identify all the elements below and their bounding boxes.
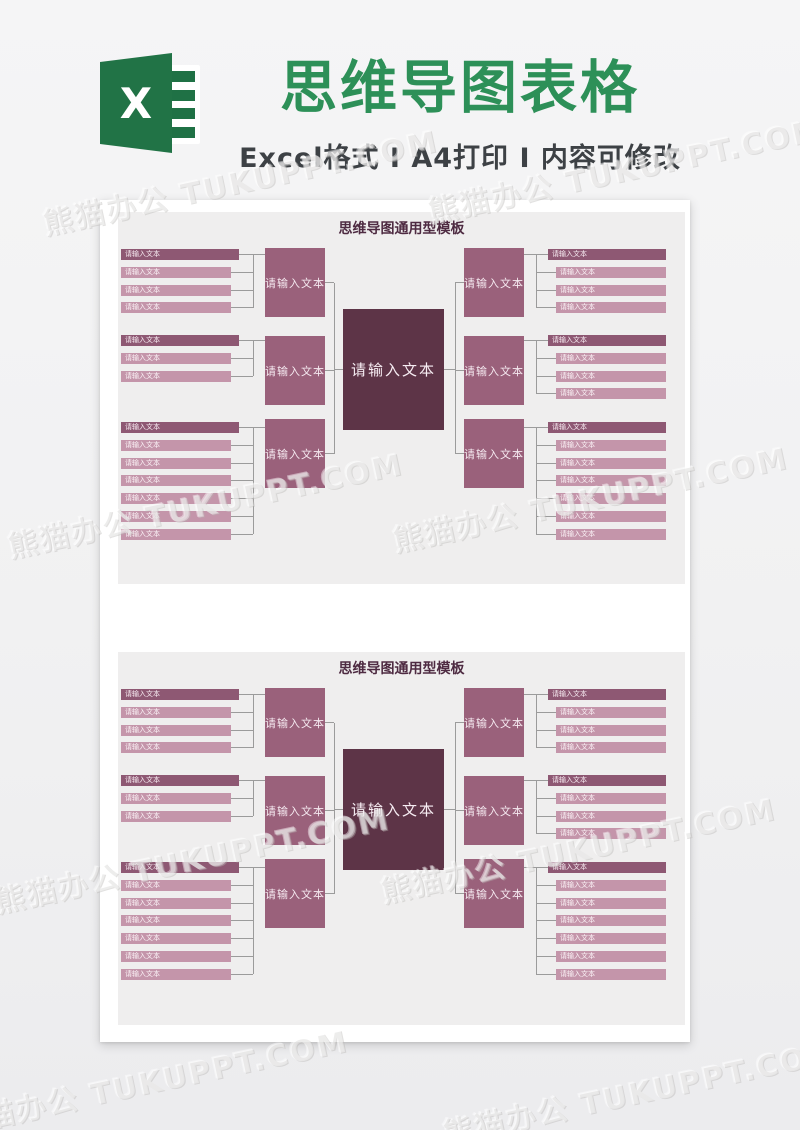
connector-line: [231, 498, 253, 499]
connector-line: [536, 480, 556, 481]
connector-line: [536, 885, 556, 886]
connector-line: [231, 307, 253, 308]
connector-line: [536, 534, 556, 535]
leaf-node: 请输入文本: [556, 475, 666, 486]
leaf-node: 请输入文本: [121, 267, 231, 278]
branch-node: 请输入文本: [464, 688, 524, 757]
leaf-node: 请输入文本: [121, 335, 239, 346]
leaf-node: 请输入文本: [556, 388, 666, 399]
branch-node: 请输入文本: [265, 688, 325, 757]
connector-line: [325, 810, 334, 811]
excel-logo-letter: X: [120, 79, 152, 128]
connector-line: [231, 534, 253, 535]
connector-line: [231, 974, 253, 975]
branch-node: 请输入文本: [464, 248, 524, 317]
connector-line: [455, 453, 464, 454]
leaf-node: 请输入文本: [556, 951, 666, 962]
connector-line: [334, 369, 343, 370]
leaf-node: 请输入文本: [548, 422, 666, 433]
connector-line: [536, 833, 556, 834]
connector-line: [455, 283, 456, 454]
connector-line: [536, 695, 537, 748]
leaf-node: 请输入文本: [121, 440, 231, 451]
connector-line: [253, 341, 254, 377]
leaf-node: 请输入文本: [556, 880, 666, 891]
connector-line: [231, 290, 253, 291]
connector-line: [231, 798, 253, 799]
leaf-node: 请输入文本: [548, 862, 666, 873]
connector-line: [536, 341, 537, 394]
connector-line: [536, 747, 556, 748]
connector-line: [253, 781, 254, 817]
leaf-node: 请输入文本: [556, 898, 666, 909]
connector-line: [334, 723, 335, 894]
connector-line: [536, 307, 556, 308]
leaf-node: 请输入文本: [121, 793, 231, 804]
leaf-node: 请输入文本: [121, 933, 231, 944]
connector-line: [536, 516, 556, 517]
leaf-node: 请输入文本: [548, 335, 666, 346]
leaf-node: 请输入文本: [556, 725, 666, 736]
leaf-node: 请输入文本: [121, 862, 239, 873]
leaf-node: 请输入文本: [556, 285, 666, 296]
leaf-node: 请输入文本: [556, 458, 666, 469]
connector-line: [231, 903, 253, 904]
leaf-node: 请输入文本: [556, 915, 666, 926]
connector-line: [536, 393, 556, 394]
leaf-node: 请输入文本: [121, 529, 231, 540]
branch-node: 请输入文本: [265, 419, 325, 488]
connector-line: [536, 290, 556, 291]
page: X 思维导图表格 Excel格式 Ⅰ A4打印 Ⅰ 内容可修改 思维导图通用型模…: [0, 0, 800, 1130]
branch-node: 请输入文本: [265, 859, 325, 928]
connector-line: [536, 463, 556, 464]
connector-line: [231, 480, 253, 481]
connector-line: [231, 956, 253, 957]
connector-line: [231, 730, 253, 731]
leaf-node: 请输入文本: [121, 493, 231, 504]
leaf-node: 请输入文本: [121, 707, 231, 718]
connector-line: [325, 370, 334, 371]
branch-node: 请输入文本: [265, 248, 325, 317]
connector-line: [536, 816, 556, 817]
connector-line: [231, 712, 253, 713]
connector-line: [325, 453, 334, 454]
leaf-node: 请输入文本: [121, 475, 231, 486]
branch-node: 请输入文本: [464, 776, 524, 845]
leaf-node: 请输入文本: [556, 828, 666, 839]
mindmap-page-1: 思维导图通用型模板请输入文本请输入文本请输入文本请输入文本请输入文本请输入文本请…: [118, 212, 685, 584]
leaf-node: 请输入文本: [121, 422, 239, 433]
leaf-node: 请输入文本: [121, 285, 231, 296]
connector-line: [231, 885, 253, 886]
connector-line: [536, 938, 556, 939]
leaf-node: 请输入文本: [121, 689, 239, 700]
connector-line: [536, 730, 556, 731]
branch-node: 请输入文本: [265, 336, 325, 405]
leaf-node: 请输入文本: [121, 880, 231, 891]
leaf-node: 请输入文本: [556, 933, 666, 944]
header-text: 思维导图表格 Excel格式 Ⅰ A4打印 Ⅰ 内容可修改: [225, 54, 695, 175]
connector-line: [334, 283, 335, 454]
branch-node: 请输入文本: [464, 859, 524, 928]
preview-sheet: 思维导图通用型模板请输入文本请输入文本请输入文本请输入文本请输入文本请输入文本请…: [100, 200, 690, 1042]
page-title: 思维导图通用型模板: [118, 218, 685, 238]
leaf-node: 请输入文本: [121, 725, 231, 736]
leaf-node: 请输入文本: [556, 267, 666, 278]
leaf-node: 请输入文本: [121, 811, 231, 822]
watermark-text: 熊猫办公 TUKUPPT.COM: [438, 1027, 800, 1130]
leaf-node: 请输入文本: [548, 775, 666, 786]
connector-line: [536, 781, 537, 834]
connector-line: [325, 722, 334, 723]
leaf-node: 请输入文本: [556, 440, 666, 451]
leaf-node: 请输入文本: [121, 249, 239, 260]
connector-line: [536, 868, 537, 975]
leaf-node: 请输入文本: [548, 689, 666, 700]
connector-line: [253, 695, 254, 748]
branch-node: 请输入文本: [265, 776, 325, 845]
leaf-node: 请输入文本: [121, 951, 231, 962]
connector-line: [536, 798, 556, 799]
leaf-node: 请输入文本: [121, 511, 231, 522]
connector-line: [231, 272, 253, 273]
connector-line: [231, 516, 253, 517]
leaf-node: 请输入文本: [121, 969, 231, 980]
leaf-node: 请输入文本: [556, 742, 666, 753]
connector-line: [455, 893, 464, 894]
mindmap-page-2: 思维导图通用型模板请输入文本请输入文本请输入文本请输入文本请输入文本请输入文本请…: [118, 652, 685, 1025]
leaf-node: 请输入文本: [121, 353, 231, 364]
connector-line: [231, 358, 253, 359]
connector-line: [536, 974, 556, 975]
central-node: 请输入文本: [343, 309, 444, 430]
connector-line: [231, 920, 253, 921]
connector-line: [536, 255, 537, 308]
leaf-node: 请输入文本: [121, 371, 231, 382]
leaf-node: 请输入文本: [548, 249, 666, 260]
connector-line: [231, 445, 253, 446]
leaf-node: 请输入文本: [556, 371, 666, 382]
connector-line: [536, 358, 556, 359]
connector-line: [231, 747, 253, 748]
connector-line: [536, 920, 556, 921]
connector-line: [231, 938, 253, 939]
connector-line: [536, 428, 537, 535]
branch-node: 请输入文本: [464, 336, 524, 405]
connector-line: [253, 868, 254, 975]
page-title: 思维导图通用型模板: [118, 658, 685, 678]
connector-line: [536, 376, 556, 377]
connector-line: [231, 816, 253, 817]
connector-line: [536, 498, 556, 499]
leaf-node: 请输入文本: [121, 742, 231, 753]
connector-line: [325, 893, 334, 894]
leaf-node: 请输入文本: [121, 302, 231, 313]
connector-line: [455, 282, 464, 283]
connector-line: [253, 255, 254, 308]
leaf-node: 请输入文本: [556, 302, 666, 313]
leaf-node: 请输入文本: [556, 969, 666, 980]
connector-line: [231, 463, 253, 464]
connector-line: [231, 376, 253, 377]
connector-line: [455, 810, 464, 811]
excel-logo-icon: X: [100, 53, 200, 153]
connector-line: [444, 809, 455, 810]
connector-line: [455, 723, 456, 894]
connector-line: [536, 272, 556, 273]
product-subtitle: Excel格式 Ⅰ A4打印 Ⅰ 内容可修改: [225, 136, 695, 175]
product-title: 思维导图表格: [225, 54, 695, 122]
leaf-node: 请输入文本: [556, 493, 666, 504]
leaf-node: 请输入文本: [121, 915, 231, 926]
connector-line: [455, 370, 464, 371]
excel-logo-cover: X: [100, 53, 172, 153]
leaf-node: 请输入文本: [556, 811, 666, 822]
connector-line: [253, 428, 254, 535]
connector-line: [455, 722, 464, 723]
leaf-node: 请输入文本: [121, 898, 231, 909]
leaf-node: 请输入文本: [121, 458, 231, 469]
connector-line: [536, 445, 556, 446]
leaf-node: 请输入文本: [556, 707, 666, 718]
leaf-node: 请输入文本: [556, 511, 666, 522]
central-node: 请输入文本: [343, 749, 444, 870]
leaf-node: 请输入文本: [556, 529, 666, 540]
connector-line: [536, 903, 556, 904]
branch-node: 请输入文本: [464, 419, 524, 488]
connector-line: [334, 809, 343, 810]
leaf-node: 请输入文本: [556, 793, 666, 804]
connector-line: [536, 956, 556, 957]
connector-line: [536, 712, 556, 713]
connector-line: [444, 369, 455, 370]
leaf-node: 请输入文本: [556, 353, 666, 364]
leaf-node: 请输入文本: [121, 775, 239, 786]
connector-line: [325, 282, 334, 283]
